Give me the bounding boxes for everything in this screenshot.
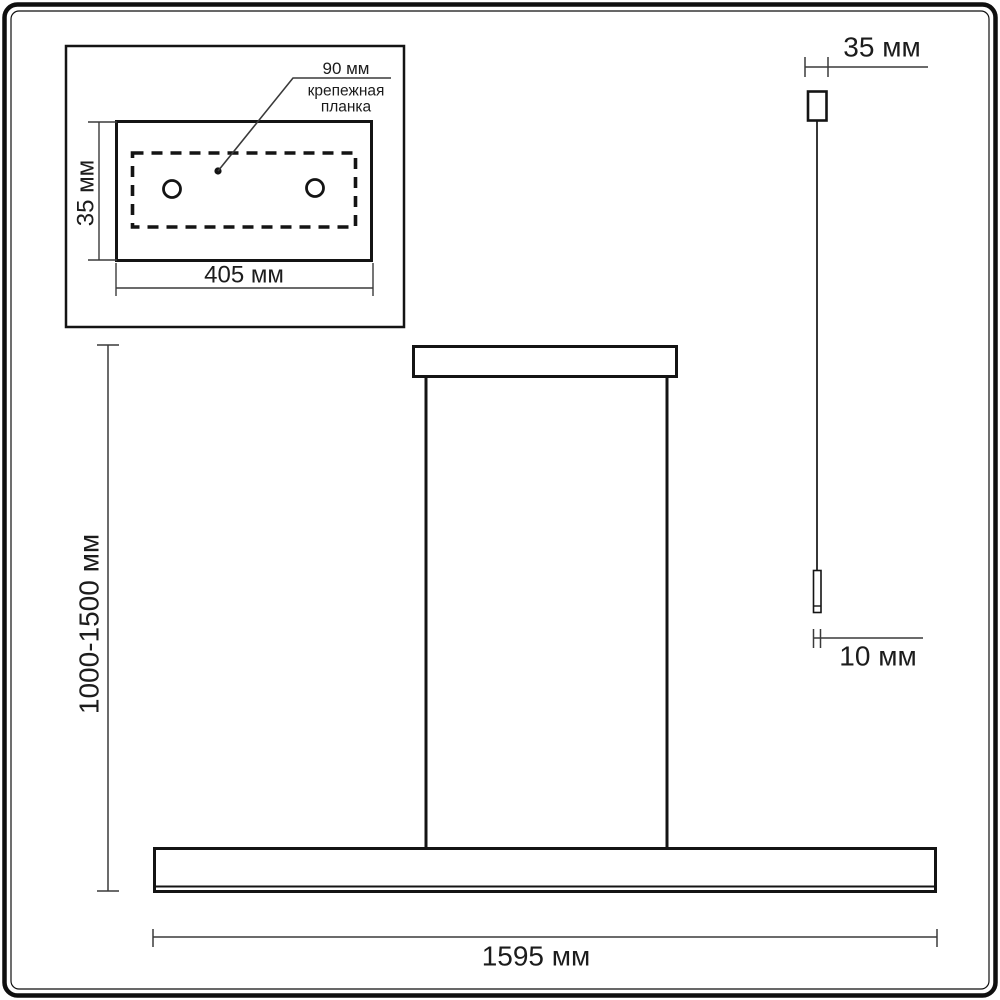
side-canopy-width-label: 35 мм (843, 32, 920, 61)
mounting-plate-name-line1: крепежная (308, 84, 385, 100)
drawing-linework (0, 0, 1000, 1000)
mounting-plate-name-line2: планка (308, 100, 385, 116)
fixture-length-label: 1595 мм (482, 941, 591, 970)
hole-spacing-label: 90 мм (322, 60, 369, 78)
suspension-height-label: 1000-1500 мм (74, 534, 103, 714)
plate-width-label: 405 мм (204, 262, 284, 287)
side-rod-width-label: 10 мм (839, 641, 916, 670)
canopy-side-outline (808, 92, 827, 121)
light-bar-outline (155, 849, 936, 892)
plate-height-label: 35 мм (73, 160, 98, 226)
technical-drawing-canvas: 90 мм крепежная планка 35 мм 405 мм 1000… (0, 0, 1000, 1000)
mounting-plate-name-label: крепежная планка (308, 84, 385, 117)
canopy-front-outline (414, 347, 677, 377)
